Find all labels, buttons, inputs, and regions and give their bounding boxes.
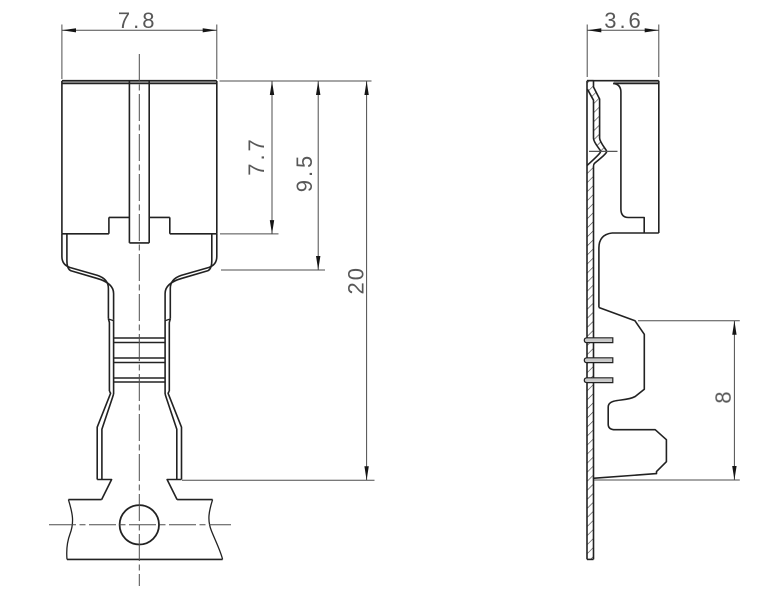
svg-text:7.7: 7.7: [244, 136, 269, 176]
svg-text:8: 8: [711, 391, 736, 403]
svg-text:7.8: 7.8: [118, 8, 158, 33]
svg-text:20: 20: [344, 266, 369, 294]
svg-text:3.6: 3.6: [604, 8, 644, 33]
svg-text:9.5: 9.5: [292, 153, 317, 193]
